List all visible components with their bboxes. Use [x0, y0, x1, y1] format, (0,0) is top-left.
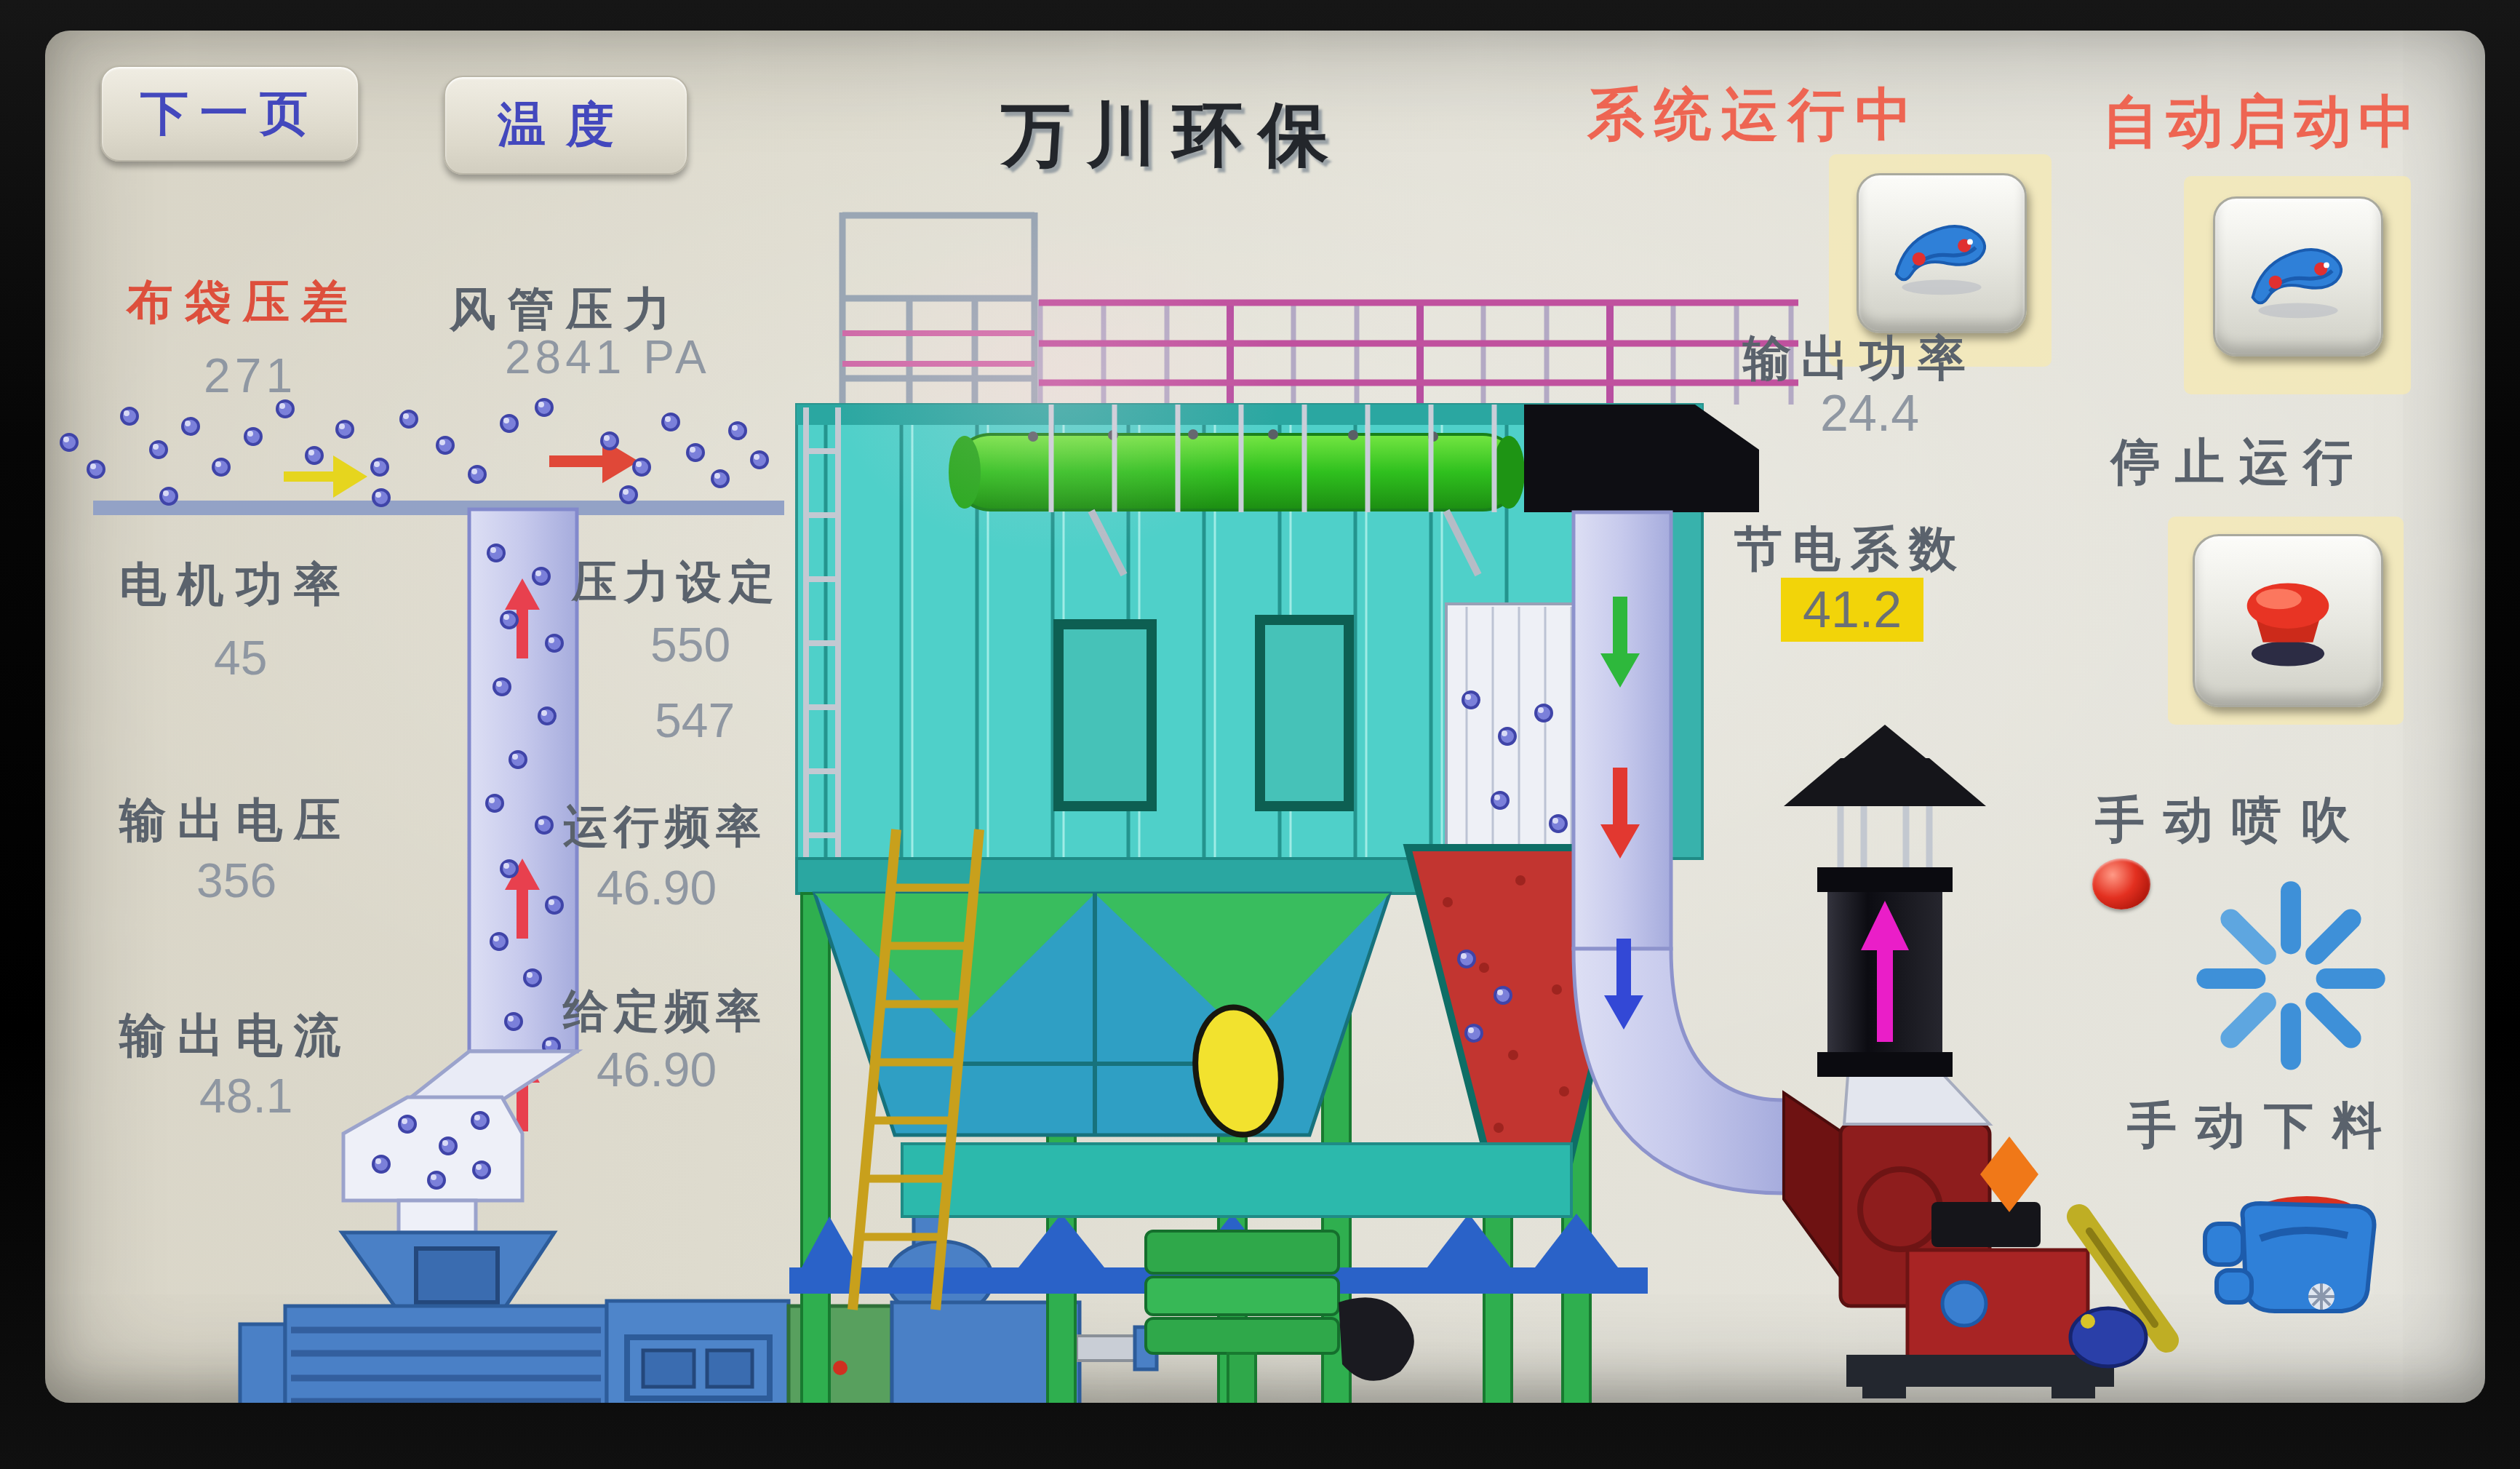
conveyor-motor: [1339, 1297, 1414, 1381]
bag-dp-label: 布袋压差: [127, 271, 359, 334]
pressure-actual-value: 547: [655, 693, 735, 748]
silencer: [1827, 867, 1942, 1077]
set-freq-label: 给定频率: [563, 981, 767, 1042]
fan-icon: [2240, 229, 2356, 324]
hmi-screen: 下一页 温度 万川环保 系统运行中 自动启动中 布袋压差 271 风管压力 28…: [45, 31, 2485, 1403]
temperature-button[interactable]: 温度: [444, 76, 688, 175]
emergency-stop-icon: [2219, 558, 2357, 683]
outlet-duct: [1574, 512, 1784, 1193]
pressure-setpoint-value: 550: [650, 617, 730, 672]
motor-power-label: 电机功率: [119, 553, 352, 616]
fan-motor-base: [1907, 1250, 2088, 1358]
set-freq-value: 46.90: [597, 1042, 717, 1097]
next-page-button[interactable]: 下一页: [100, 65, 359, 162]
duct-pressure-value: 2841 PA: [505, 330, 711, 384]
manual-blow-label: 手动喷吹: [2095, 787, 2369, 853]
page-title: 万川环保: [896, 89, 1449, 183]
save-factor-value: 41.2: [1781, 578, 1923, 642]
process-diagram: [45, 31, 2485, 1403]
manual-discharge-label: 手动下料: [2127, 1093, 2401, 1159]
output-power-value: 24.4: [1820, 384, 1919, 442]
baghouse: [789, 212, 1798, 1403]
emergency-stop-button[interactable]: [2193, 534, 2383, 707]
feed-duct: [342, 509, 577, 1310]
manual-discharge-button[interactable]: [2193, 1180, 2404, 1340]
output-current-value: 48.1: [199, 1068, 292, 1123]
auto-fan-button[interactable]: [2213, 196, 2383, 357]
stack-cap: [1784, 758, 1986, 806]
discharge-valve-icon: [2193, 1180, 2404, 1340]
support-legs: [802, 893, 1590, 1403]
run-freq-value: 46.90: [597, 860, 717, 915]
manual-blow-button[interactable]: [2178, 866, 2404, 1091]
stop-run-label: 停止运行: [2111, 429, 2367, 495]
orange-diamond-tag: [1980, 1136, 2038, 1212]
filter-particles: [1463, 692, 1632, 992]
blow-pulse-starburst-icon: [2178, 866, 2404, 1091]
output-voltage-value: 356: [196, 853, 276, 908]
auto-start-status: 自动启动中: [2102, 84, 2423, 161]
output-current-label: 输出电流: [119, 1004, 352, 1067]
output-power-label: 输出功率: [1743, 326, 1976, 391]
output-voltage-label: 输出电压: [119, 789, 352, 852]
screw-feeder-blower: [234, 1202, 1157, 1403]
run-freq-label: 运行频率: [563, 796, 767, 857]
system-running-status: 系统运行中: [1587, 77, 1922, 154]
save-factor-label: 节电系数: [1734, 517, 1967, 582]
motor-power-value: 45: [214, 630, 267, 685]
fan-icon: [1883, 206, 2000, 300]
inlet-duct-line: [93, 439, 784, 515]
blow-indicator-led: [2092, 859, 2150, 909]
pressure-set-label: 压力设定: [572, 552, 781, 613]
red-hopper: [1408, 848, 1646, 1179]
inlet-particles: [61, 399, 767, 506]
bag-dp-value: 271: [204, 348, 297, 403]
run-fan-button[interactable]: [1857, 173, 2027, 333]
clean-air-outlet-box: [1524, 405, 1759, 512]
screen-glare: [831, 220, 1282, 554]
base-beam: [789, 1267, 1648, 1294]
